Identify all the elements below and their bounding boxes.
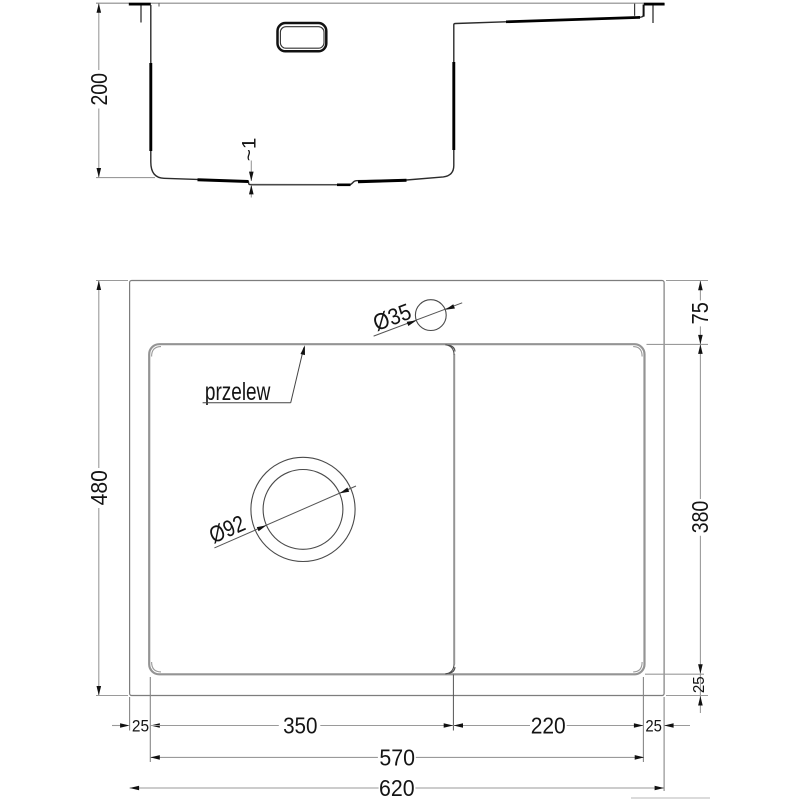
svg-text:~1: ~1 [238,138,260,162]
svg-text:480: 480 [86,470,112,505]
svg-text:75: 75 [687,302,713,324]
svg-text:przelew: przelew [205,378,271,406]
svg-text:380: 380 [687,501,713,534]
svg-text:25: 25 [132,716,149,735]
svg-text:570: 570 [379,744,415,770]
svg-text:25: 25 [691,676,708,693]
svg-text:25: 25 [645,716,662,735]
svg-text:Ø35: Ø35 [369,298,414,336]
svg-text:350: 350 [283,713,317,739]
svg-text:620: 620 [379,775,415,800]
svg-text:Ø92: Ø92 [205,510,249,548]
svg-text:220: 220 [531,713,566,739]
svg-text:200: 200 [86,73,112,106]
